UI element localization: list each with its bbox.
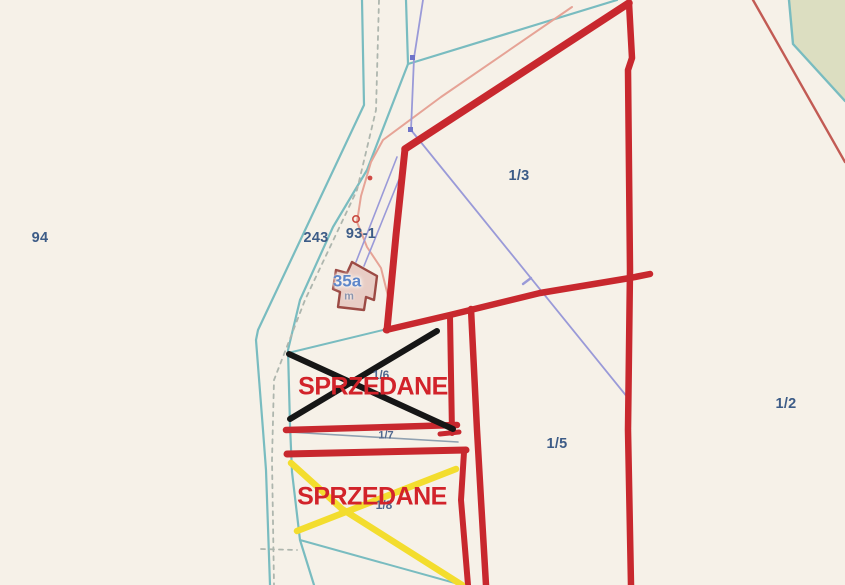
boundary-middle-line [386, 274, 650, 330]
parcel16-east-line [450, 316, 452, 433]
parcel-label-1-2: 1/2 [775, 397, 796, 412]
survey-marker-top-icon [410, 55, 415, 60]
parcel18-east-line [461, 452, 468, 585]
sold-annotation-lower: SPRZEDANE [297, 485, 447, 510]
survey-tick-icon [523, 278, 531, 284]
building-sublabel-m: m [344, 292, 354, 303]
building-label-35a: 35a [333, 273, 361, 290]
parcel-label-1-3: 1/3 [508, 169, 529, 184]
parcel16-northwest-edge-line [288, 330, 383, 353]
survey-marker-mid-icon [408, 127, 413, 132]
sold-annotation-upper: SPRZEDANE [298, 375, 448, 400]
parcel-label-93-1: 93-1 [346, 227, 376, 242]
parcel-label-94: 94 [32, 231, 49, 246]
parcel16-east-foot-line [440, 432, 459, 434]
survey-line-branch-1 [356, 157, 397, 262]
parcel-label-243: 243 [303, 231, 328, 246]
boundary-apex-line [405, 3, 629, 149]
power-line-dot [368, 176, 373, 181]
parcel-label-1-7: 1/7 [378, 431, 393, 442]
survey-line [411, 0, 628, 398]
parcel-label-1-5: 1/5 [546, 437, 567, 452]
cadastral-map-canvas[interactable]: 94 243 93-1 1/3 1/2 1/5 1/6 1/7 1/8 35a … [0, 0, 845, 585]
green-area-region [789, 0, 845, 102]
parcel17-boundary-thin-line [288, 432, 458, 442]
boundary-east-line [628, 3, 632, 585]
dashed-branch-line [261, 549, 297, 550]
parcel17-south-line [287, 450, 466, 454]
parcel16-south-line [286, 425, 457, 430]
parcel-divider-long-line [471, 309, 486, 585]
parcel-bottom-boundary-line [300, 540, 462, 585]
